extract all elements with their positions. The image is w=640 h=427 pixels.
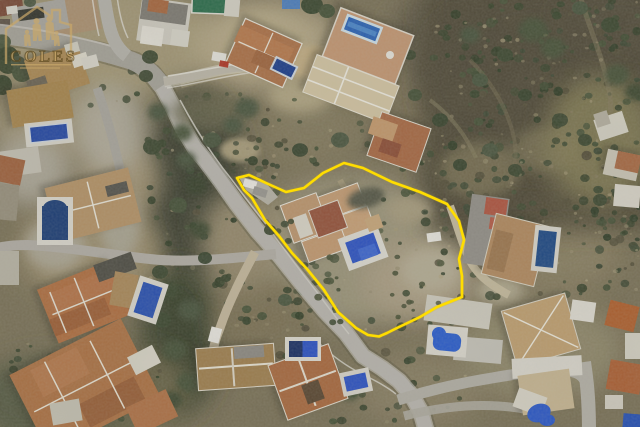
svg-text:COLES: COLES <box>10 49 77 66</box>
